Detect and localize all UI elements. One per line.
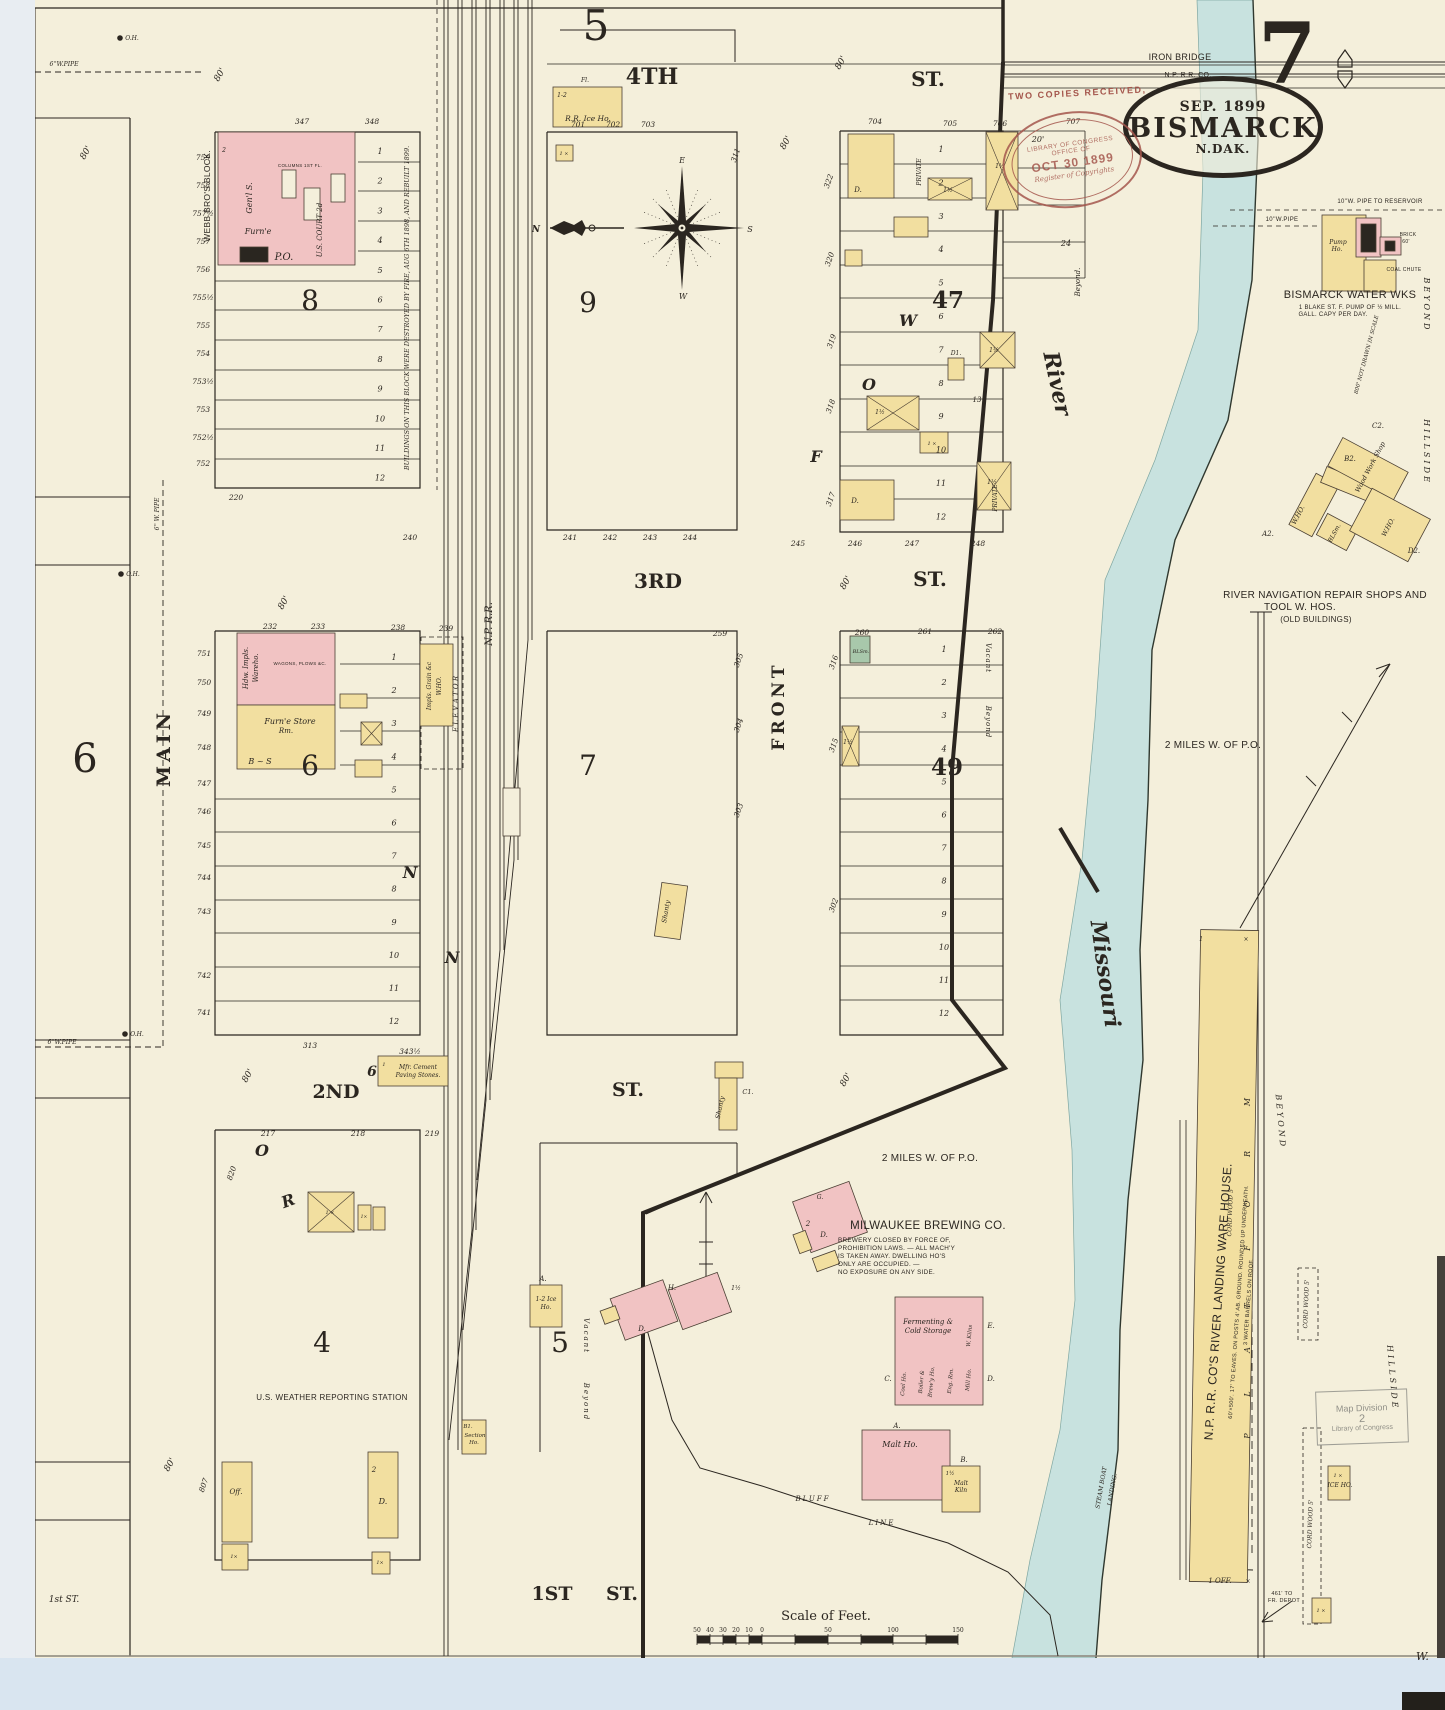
map-label: Mfr. Cement xyxy=(398,1064,438,1071)
map-label: × xyxy=(1245,1578,1250,1585)
map-label: 1½ xyxy=(943,187,953,194)
map-label: W xyxy=(899,311,919,330)
map-label: D. xyxy=(850,497,859,505)
map-label: 80' xyxy=(162,1456,178,1473)
map-label: O.H. xyxy=(130,1031,144,1038)
scale-tick-label: 150 xyxy=(952,1627,964,1634)
scale-tick-label: 0 xyxy=(760,1627,764,1634)
building xyxy=(948,358,964,380)
building xyxy=(368,1452,398,1538)
map-label: 1-2 xyxy=(557,92,567,99)
lot-number: 11 xyxy=(375,444,385,453)
sanborn-map-sheet: 5040302010050100150123456789101112123456… xyxy=(0,0,1445,1710)
map-label: BLUFF xyxy=(794,1495,830,1503)
map-label: 315 xyxy=(827,737,840,754)
lot-number: 3 xyxy=(377,206,382,215)
map-label: 233 xyxy=(310,622,326,631)
lot-number: 4 xyxy=(937,245,943,254)
map-label: N.P. R.R. xyxy=(484,602,495,647)
map-label: 807 xyxy=(197,1477,210,1494)
map-label: 1 × xyxy=(560,151,569,157)
map-label: F xyxy=(809,447,823,466)
building xyxy=(373,1207,385,1230)
map-label: N xyxy=(444,948,461,967)
map-label: E xyxy=(678,156,685,165)
stamp-inner-ring: LIBRARY OF CONGRESS OFFICE OF OCT 30 189… xyxy=(1006,112,1138,207)
map-label: 80' xyxy=(240,1067,256,1084)
lot-number: 8 xyxy=(938,379,943,388)
map-label: 2 MILES W. OF P.O. xyxy=(1165,740,1261,751)
map-label: T xyxy=(1243,1303,1252,1309)
building xyxy=(654,882,687,939)
map-label: O xyxy=(1243,1200,1252,1207)
lot-number: 5 xyxy=(391,785,396,794)
map-line xyxy=(547,631,737,1035)
map-label: 1 OFF. xyxy=(1208,1577,1231,1585)
map-label: 246 xyxy=(847,539,863,548)
map-label: 2 xyxy=(221,147,226,154)
map-label: MAIN xyxy=(153,709,175,787)
map-label: WAGONS, PLOWS &C. xyxy=(274,661,327,666)
map-label: 8 xyxy=(301,284,319,317)
map-label: Cold Storage xyxy=(905,1327,951,1335)
map-label: O.H. xyxy=(126,571,140,578)
map-label: 247 xyxy=(904,539,920,548)
hydrant-dot xyxy=(118,571,124,577)
map-label: PRIVATE xyxy=(916,158,923,187)
map-label: B ~ S xyxy=(247,757,272,766)
map-label: 759 xyxy=(196,153,211,162)
lot-number: 5 xyxy=(377,266,382,275)
map-label: NO EXPOSURE ON ANY SIDE. xyxy=(838,1269,935,1276)
map-label: 701 xyxy=(571,120,585,129)
map-label: 259 xyxy=(712,629,728,638)
building xyxy=(840,480,894,520)
map-label: W.HO. xyxy=(436,677,443,696)
lot-number: 12 xyxy=(939,1009,949,1018)
map-label: 311 xyxy=(729,147,742,164)
map-canvas: 5040302010050100150123456789101112123456… xyxy=(0,0,1445,1710)
map-label: 10''W. PIPE TO RESERVOIR xyxy=(1337,199,1423,205)
map-label: C1. xyxy=(742,1088,753,1096)
map-label: COAL CHUTE xyxy=(1386,267,1421,273)
building xyxy=(355,760,382,777)
map-label: Paving Stones. xyxy=(395,1072,441,1079)
map-label: Section xyxy=(465,1433,486,1439)
map-label: 80' xyxy=(838,574,854,591)
map-label: 343½ xyxy=(399,1047,421,1056)
scale-tick-label: 10 xyxy=(745,1627,753,1634)
map-label: 241 xyxy=(562,533,577,542)
map-label: B2. xyxy=(1343,455,1356,463)
map-label: 757 xyxy=(196,237,211,246)
lot-number: 10 xyxy=(939,943,949,952)
building xyxy=(894,217,928,237)
map-label: Furn'e Store xyxy=(263,717,315,726)
map-label: 238 xyxy=(390,623,406,632)
map-label: Hdw. Impls. xyxy=(242,647,250,690)
map-label: 753½ xyxy=(192,377,214,386)
map-label: 820 xyxy=(225,1165,238,1182)
map-label: Kiln xyxy=(954,1487,967,1494)
lot-number: 4 xyxy=(390,752,396,761)
scale-tick-label: 20 xyxy=(732,1627,740,1634)
lot-number: 12 xyxy=(375,474,385,483)
title-oval: SEP. 1899 BISMARCK N.DAK. xyxy=(1123,76,1323,178)
map-label: 753 xyxy=(196,405,211,414)
map-label: 1½ xyxy=(731,1285,741,1292)
lot-number: 10 xyxy=(389,951,399,960)
map-label: O xyxy=(862,375,876,394)
building xyxy=(715,1062,743,1078)
map-label: Malt Ho. xyxy=(881,1440,917,1449)
lot-number: 11 xyxy=(939,976,949,985)
map-label: 217 xyxy=(260,1129,276,1138)
map-label: 319 xyxy=(825,333,838,350)
map-label: Rm. xyxy=(278,727,293,735)
map-label: O xyxy=(255,1141,269,1160)
map-label: River xyxy=(1037,348,1076,419)
map-label: 260 xyxy=(854,628,870,637)
map-label: Vacant xyxy=(582,1318,590,1354)
corner-mark: W. xyxy=(1416,1650,1429,1663)
lot-number: 7 xyxy=(941,844,947,853)
map-label: Beyond xyxy=(984,705,992,738)
lot-number: 8 xyxy=(941,877,946,886)
map-label: × xyxy=(1243,936,1248,943)
lot-number: 1 xyxy=(377,147,382,156)
map-label: B. xyxy=(959,1456,967,1464)
map-label: Ho. xyxy=(468,1440,479,1446)
map-label: 2 xyxy=(371,1466,377,1474)
map-label: Beyond. xyxy=(1074,268,1082,298)
lot-number: 11 xyxy=(389,984,399,993)
map-label: W xyxy=(679,292,688,301)
map-label: BLSm. xyxy=(852,649,870,655)
map-label: IRON BRIDGE xyxy=(1149,52,1212,62)
map-label: 3RD xyxy=(634,569,682,593)
map-division-stamp: Map Division 2 Library of Congress xyxy=(1315,1388,1409,1445)
map-label: 745 xyxy=(197,841,212,850)
map-label: R xyxy=(1243,1151,1252,1158)
map-label: 756 xyxy=(196,265,211,274)
hydrant-dot xyxy=(122,1031,128,1037)
lot-number: 6 xyxy=(391,819,396,828)
map-label: 704 xyxy=(868,117,883,126)
map-label: S xyxy=(747,225,753,234)
lot-number: 11 xyxy=(936,479,946,488)
building xyxy=(222,1462,252,1542)
map-label: 752½ xyxy=(192,433,214,442)
map-label: 261 xyxy=(917,627,932,636)
map-label: N xyxy=(531,225,541,235)
map-label: 49 xyxy=(931,754,963,781)
scale-tick-label: 50 xyxy=(824,1627,832,1634)
map-line xyxy=(840,631,1003,1035)
map-line xyxy=(491,860,514,1080)
map-label: Furn'e xyxy=(244,227,272,236)
map-label: IS TAKEN AWAY. DWELLING HO'S xyxy=(838,1253,946,1260)
map-label: 1 BLAKE ST. F. PUMP OF ½ MILL. xyxy=(1299,304,1401,311)
map-label: 302 xyxy=(827,897,840,914)
lot-number: 9 xyxy=(941,910,946,919)
map-label: 245 xyxy=(790,539,806,548)
map-label: Impls. Grain &c xyxy=(426,661,433,711)
map-label: MILWAUKEE BREWING CO. xyxy=(850,1220,1006,1232)
map-label: D1. xyxy=(950,350,962,357)
map-label: 240 xyxy=(402,533,418,542)
map-label: 1-2 Ice xyxy=(536,1296,557,1303)
map-label: 9 xyxy=(579,286,597,319)
map-label: A xyxy=(1243,1347,1252,1354)
map-label: 6 xyxy=(367,1064,377,1080)
scale-tick-label: 30 xyxy=(719,1627,727,1634)
map-label: 24 xyxy=(1060,239,1071,248)
building xyxy=(842,726,859,766)
lot-number: 8 xyxy=(377,355,382,364)
map-label: 317 xyxy=(824,491,837,508)
map-label: PROHIBITION LAWS. — ALL MACH'Y xyxy=(838,1245,956,1252)
map-label: E L E V A T O R xyxy=(452,675,460,733)
map-label: D. xyxy=(819,1231,828,1239)
scan-edge-bottom xyxy=(0,1658,1445,1710)
lot-number: 3 xyxy=(391,719,396,728)
map-label: 80' xyxy=(778,134,794,151)
map-label: 322 xyxy=(822,173,835,190)
map-label: BRICK xyxy=(1400,232,1417,238)
lot-number: 12 xyxy=(389,1017,399,1026)
map-label: Scale of Feet. xyxy=(781,1609,871,1624)
map-label: Pump xyxy=(1328,239,1347,246)
lot-number: 1 xyxy=(941,645,946,654)
lot-number: 3 xyxy=(941,711,946,720)
building xyxy=(331,174,345,202)
map-label: 80' xyxy=(838,1071,854,1088)
scale-tick-label: 40 xyxy=(706,1627,714,1634)
map-label: 313 xyxy=(303,1041,318,1050)
map-label: D. xyxy=(986,1375,995,1383)
map-label: 1½ xyxy=(987,479,997,486)
building xyxy=(340,694,367,708)
map-label: Fl. xyxy=(580,77,589,84)
map-label: ST. xyxy=(911,67,945,91)
map-label: FR. DEPOT xyxy=(1268,1598,1300,1604)
map-label: 800' NOT DRAWN IN SCALE xyxy=(1354,315,1381,395)
building xyxy=(812,1250,839,1271)
hydrant-dot xyxy=(117,35,123,41)
map-label: Wareho. xyxy=(252,653,260,682)
building xyxy=(282,170,296,198)
lot-number: 2 xyxy=(390,686,396,695)
map-label: 1½ xyxy=(843,739,853,746)
map-label: H. xyxy=(667,1284,676,1292)
map-label: D2. xyxy=(1407,547,1420,555)
building xyxy=(1361,224,1376,252)
map-label: 703 xyxy=(641,120,656,129)
map-label: M xyxy=(1243,1097,1252,1107)
lot-number: 3 xyxy=(938,212,943,221)
map-label: 60' xyxy=(1402,239,1409,245)
lot-number: 4 xyxy=(376,236,382,245)
map-label: (OLD BUILDINGS) xyxy=(1280,615,1352,624)
map-label: CORD WOOD 5' xyxy=(1306,1499,1315,1548)
map-label: 1 xyxy=(1199,936,1203,943)
map-label: 4TH xyxy=(626,64,678,90)
map-line xyxy=(700,1192,706,1203)
building xyxy=(1385,241,1395,251)
map-label: 1 × xyxy=(326,1210,335,1216)
scan-edge-corner-notch xyxy=(1402,1692,1445,1710)
map-label: 248 xyxy=(970,539,986,548)
map-label: U.S. COURT 2d xyxy=(316,202,324,257)
map-label: C. xyxy=(884,1375,891,1383)
map-label: 1× xyxy=(361,1214,368,1220)
map-label: 702 xyxy=(606,120,621,129)
map-line xyxy=(505,640,528,900)
map-label: BREWERY CLOSED BY FORCE OF, xyxy=(838,1237,951,1244)
map-label: 5 xyxy=(583,1,610,50)
map-label: 7 xyxy=(579,749,597,782)
map-label: BEYOND xyxy=(1422,277,1431,333)
map-label: BUILDINGS ON THIS BLOCK WERE DESTROYED B… xyxy=(403,146,411,471)
building xyxy=(503,788,520,836)
lot-number: 9 xyxy=(938,412,943,421)
map-label: 751 xyxy=(197,649,211,658)
map-label: 758 xyxy=(196,181,211,190)
map-line xyxy=(449,1230,472,1440)
map-label: B1. xyxy=(462,1424,473,1430)
map-label: 747 xyxy=(197,779,212,788)
map-label: RIVER NAVIGATION REPAIR SHOPS AND xyxy=(1223,590,1427,601)
map-label: BISMARCK WATER WKS xyxy=(1284,289,1417,301)
map-label: ST. xyxy=(612,1079,644,1101)
map-label: D. xyxy=(853,186,862,194)
scale-bar: 5040302010050100150 xyxy=(693,1627,964,1645)
map-label: U.S. WEATHER REPORTING STATION xyxy=(256,1393,408,1402)
map-label: Beyond xyxy=(582,1382,590,1421)
map-label: CORD WOOD 5' xyxy=(1302,1279,1311,1328)
map-label: ST. xyxy=(606,1583,638,1605)
map-label: N xyxy=(402,863,419,882)
map-label: 318 xyxy=(824,398,837,415)
compass-rose xyxy=(550,166,744,290)
scale-tick-label: 50 xyxy=(693,1627,701,1634)
map-label: 752 xyxy=(196,459,211,468)
map-label: WEBB BRO'S BLOCK. xyxy=(202,150,212,242)
building xyxy=(361,722,382,745)
building xyxy=(1364,260,1396,292)
building xyxy=(845,250,862,266)
map-label: Gen'l S. xyxy=(245,182,254,213)
map-label: R xyxy=(278,1190,298,1213)
map-label: 4 xyxy=(313,1326,331,1359)
map-label: A. xyxy=(892,1422,900,1430)
map-label: P xyxy=(1243,1433,1252,1440)
map-label: 244 xyxy=(682,533,698,542)
map-label: Malt xyxy=(953,1480,969,1487)
map-label: 2 xyxy=(805,1220,811,1228)
map-label: 6''W.PIPE xyxy=(50,61,80,68)
lot-number: 12 xyxy=(936,512,946,521)
title-city: BISMARCK xyxy=(1128,115,1317,142)
map-label: 2 MILES W. OF P.O. xyxy=(882,1153,978,1164)
map-label: 1½ xyxy=(989,347,999,354)
map-label: 1× xyxy=(376,1560,383,1566)
map-label: Off. xyxy=(230,1488,243,1496)
map-label: 6 xyxy=(301,749,319,782)
map-label: 239 xyxy=(438,624,454,633)
map-label: 1ST xyxy=(531,1583,572,1605)
map-label: 754 xyxy=(196,349,211,358)
map-label: TOOL W. HOS. xyxy=(1264,602,1336,613)
map-label: 303 xyxy=(732,802,745,819)
lot-number: 4 xyxy=(940,744,946,753)
map-label: GALL. CAPY PER DAY. xyxy=(1298,312,1367,318)
map-label: BEYOND xyxy=(1274,1093,1288,1150)
building xyxy=(240,247,268,262)
map-label: 232 xyxy=(262,622,278,631)
map-label: 1½ xyxy=(875,409,885,416)
map-label: FRONT xyxy=(769,661,789,750)
scan-edge-left xyxy=(0,0,35,1710)
map-label: 748 xyxy=(197,743,212,752)
map-label: LINE xyxy=(868,1519,896,1527)
lot-number: 10 xyxy=(936,446,946,455)
lot-number: 6 xyxy=(377,296,382,305)
map-label: P.O. xyxy=(274,252,294,263)
map-line xyxy=(706,1192,712,1203)
map-label: 316 xyxy=(827,654,840,671)
map-label: 13 xyxy=(973,396,982,404)
map-label: 242 xyxy=(602,533,618,542)
map-label: D. xyxy=(378,1497,388,1506)
map-label: 1st ST. xyxy=(49,1595,80,1605)
map-label: COLUMNS 1ST FL. xyxy=(278,163,322,168)
map-label: 320 xyxy=(823,251,836,268)
map-label: 743 xyxy=(197,907,212,916)
map-label: 262 xyxy=(987,627,1003,636)
map-label: A. xyxy=(538,1275,546,1283)
lot-number: 10 xyxy=(375,414,385,423)
map-line xyxy=(1262,1601,1292,1622)
map-label: Fermenting & xyxy=(902,1318,953,1326)
map-label: HILLSIDE xyxy=(1422,418,1431,485)
map-label: 1× xyxy=(230,1554,237,1560)
map-label: 705 xyxy=(943,119,958,128)
map-label: 348 xyxy=(365,117,380,126)
map-line xyxy=(547,132,737,530)
map-label: 1 × xyxy=(1317,1608,1326,1614)
map-line xyxy=(1342,712,1352,722)
map-label: 2ND xyxy=(312,1081,359,1103)
map-label: A2. xyxy=(1261,530,1274,538)
scale-tick-label: 100 xyxy=(887,1627,899,1634)
lot-number: 8 xyxy=(391,885,396,894)
map-label: 80' xyxy=(212,66,228,83)
map-line xyxy=(463,1100,486,1330)
lot-number: 2 xyxy=(376,177,382,186)
north-pointer xyxy=(550,220,586,236)
lot-number: 7 xyxy=(377,325,383,334)
map-label: D. xyxy=(637,1325,646,1333)
map-label: 1½ xyxy=(946,1470,955,1477)
map-label: 80' xyxy=(276,594,292,611)
map-label: 461' TO xyxy=(1271,1591,1293,1597)
map-label: 5 xyxy=(551,1326,569,1359)
map-label: 744 xyxy=(197,873,212,882)
map-line xyxy=(643,1315,1058,1656)
lot-number: 2 xyxy=(940,678,946,687)
